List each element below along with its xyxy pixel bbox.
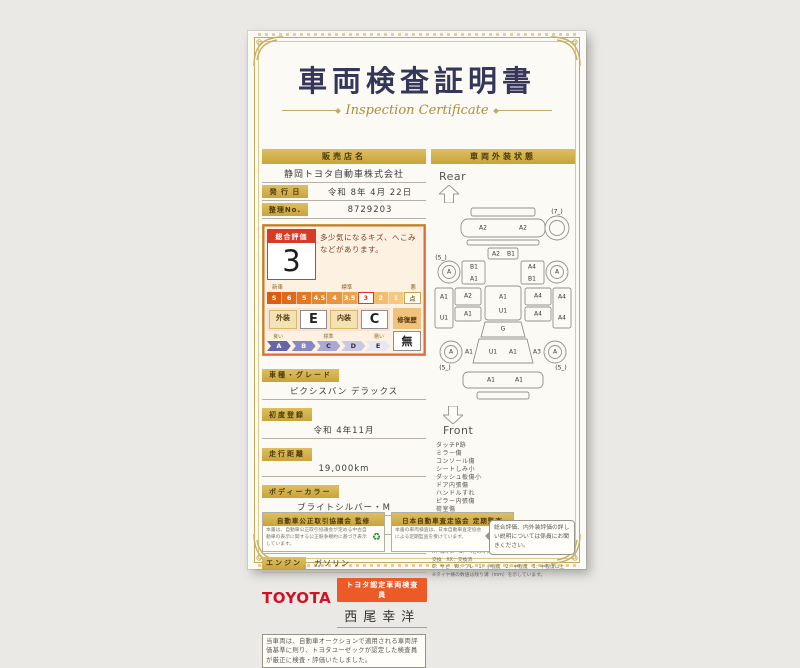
rear-direction: Rear [431,164,575,203]
exterior-condition-column: 車両外装状態 Rear [431,149,575,668]
damage-code: A1 [470,276,478,283]
front-direction: Front [431,402,575,437]
scale-cell: 5 [297,292,312,304]
scale-cell: 3 [358,292,374,304]
interior-grade: C [361,310,388,329]
rating-top-row: 総合評価 3 多少気になるキズ、へこみなどがあります。 [267,229,421,280]
grade-scale: ABCDE [267,341,390,351]
info-speech-bubble: 総合評価、内外装評価の詳しい説明については係員にお聞きください。 [489,520,575,555]
corner-flourish-icon [549,34,583,68]
condition-note: ピラー内張傷 [436,498,575,506]
grade-label-standard: 標準 [323,333,333,340]
damage-code: B1 [528,276,536,283]
damage-code: A1 [509,349,517,356]
damage-code: A1 [499,294,507,301]
rear-label: Rear [439,170,575,183]
vehicle-fields: 車種・グレード ピクシスバン デラックス 初度登録 令和 4年11月 走行距離 … [262,360,426,516]
damage-code: (7_) [551,209,563,216]
interior-label: 内装 [330,310,358,329]
rating-mid-row: 外装 E 内装 C 良い 標準 悪い ABCDE [267,308,421,351]
damage-code: A4 [558,315,566,322]
condition-note: コンソール傷 [436,458,575,466]
scale-cell: S [267,292,282,304]
damage-code: A2 [479,225,487,232]
field-label: 車種・グレード [262,369,339,382]
exterior-label: 外装 [269,310,297,329]
exterior-header: 車両外装状態 [431,149,575,164]
damage-code: A1 [440,294,448,301]
lace-edge-top [258,33,576,36]
scale-cell: 6 [282,292,297,304]
rating-scale: S654.543.5321 点 [267,292,421,304]
footer-boxes: 自動車公正取引協議会 監修 本書は、自動車公正取引協議会が定める中古自動車の表示… [262,512,514,552]
damage-code: (5_) [435,255,447,262]
rating-mid-left: 外装 E 内装 C 良い 標準 悪い ABCDE [267,308,390,351]
front-label: Front [443,424,575,437]
ref-no-value: 8729203 [314,205,426,215]
inspector-right: トヨタ認定車両検査員 西尾幸洋 [337,578,427,628]
photo-of-certificate: { "header": { "title": "車両検査証明書", "subti… [0,0,800,600]
grade-chevron: E [366,341,390,351]
damage-code: A2 [464,293,472,300]
damage-code: B1 [507,251,515,258]
condition-note: ドア内張傷 [436,482,575,490]
field-row: エンジン ガソリン [262,554,426,573]
repair-history: 修復歴 無 [393,308,421,351]
field-value: 19,000km [262,461,426,475]
overall-rating-value: 3 [268,243,315,279]
rating-box: 総合評価 3 多少気になるキズ、へこみなどがあります。 新車 標準 悪 S654… [262,224,426,356]
damage-code: A4 [534,293,542,300]
field-label: エンジン [262,557,306,570]
car-damage-diagram: A2A2(7_)A2B1(5_)AAB1A1A4B1A1U1A2A1A4A4A4… [431,206,575,402]
certificate-title: 車両検査証明書 [248,58,586,100]
fair-trade-title: 自動車公正取引協議会 監修 [263,513,384,526]
scale-axis-labels: 新車 標準 悪 [267,283,421,291]
damage-code: A [449,349,453,356]
condition-note: タッチP跡 [436,442,575,450]
condition-note: シートしみ小 [436,466,575,474]
damage-code: (5_) [439,365,451,372]
rating-scale-cells: S654.543.5321 [267,292,404,304]
damage-code: A1 [515,377,523,384]
damage-code: B1 [470,264,478,271]
inspector-name: 西尾幸洋 [337,606,427,628]
grade-chevron: A [267,341,291,351]
field-row: 走行距離 19,000km [262,439,426,477]
condition-notes: タッチP跡ミラー傷コンソール傷シートしみ小ダッシュ板傷小ドア内張傷ハンドルすれピ… [431,437,575,522]
field-label: 走行距離 [262,448,312,461]
condition-note: ミラー傷 [436,450,575,458]
grade-chevron: D [341,341,365,351]
field-label: ボディーカラー [262,485,339,498]
damage-code: A3 [533,349,541,356]
grade-label-bad: 悪い [374,333,384,340]
scale-label-bad: 悪 [410,283,416,291]
disclaimer-text: 当車両は、自動車オークションで適用される車両評価基準に則り、トヨタユーゼックが認… [262,634,426,668]
field-value: ガソリン [314,558,350,569]
scale-cell: 3.5 [343,292,358,304]
damage-code: A2 [492,251,500,258]
scale-label-new: 新車 [272,283,283,291]
damage-code: A1 [465,349,473,356]
inspector-badge: トヨタ認定車両検査員 [337,578,427,602]
field-value: ピクシスバン デラックス [262,382,426,398]
overall-rating: 総合評価 3 [267,229,316,280]
repair-history-value: 無 [393,331,421,351]
field-row: 車種・グレード ピクシスバン デラックス [262,360,426,400]
damage-code: A1 [487,377,495,384]
legend-line: ※タイヤ横の数値は残り溝（mm）を示しています。 [432,572,574,579]
field-row: 初度登録 令和 4年11月 [262,400,426,440]
legend-line: C：サビ W：ワレ 1：小程度 2：中程度 3：中程度以上 [432,564,574,571]
grade-axis-labels: 良い 標準 悪い [267,333,390,340]
condition-note: ハンドルすれ [436,490,575,498]
ref-no-label: 整理No. [262,203,308,216]
toyota-logo: TOYOTA [262,578,331,607]
subtitle-ornament-line [496,110,552,111]
corner-flourish-icon [251,34,285,68]
fair-trade-box: 自動車公正取引協議会 監修 本書は、自動車公正取引協議会が定める中古自動車の表示… [262,512,385,552]
content-columns: 販売店名 静岡トヨタ自動車株式会社 発 行 日 令和 8年 4月 22日 整理N… [262,149,573,668]
arrow-up-icon [439,185,575,203]
scale-cell: 2 [374,292,389,304]
scale-cell: 4 [327,292,342,304]
damage-code: A4 [534,311,542,318]
field-label: 初度登録 [262,408,312,421]
damage-code: U1 [440,315,448,322]
fair-trade-body: 本書は、自動車公正取引協議会が定める中古自動車の表示に関する公正競争規約に基づき… [266,528,369,549]
scale-cell: 1 [389,292,404,304]
fair-trade-body-row: 本書は、自動車公正取引協議会が定める中古自動車の表示に関する公正競争規約に基づき… [263,526,384,551]
subtitle-ornament-line [282,110,338,111]
grade-chevron: C [317,341,341,351]
scale-label-standard: 標準 [341,283,352,291]
seller-name: 静岡トヨタ自動車株式会社 [262,164,426,183]
vehicle-info-column: 販売店名 静岡トヨタ自動車株式会社 発 行 日 令和 8年 4月 22日 整理N… [262,149,426,668]
exterior-interior-row: 外装 E 内装 C [267,308,390,331]
issue-date-row: 発 行 日 令和 8年 4月 22日 [262,183,426,201]
damage-code: A4 [558,294,566,301]
damage-code: U1 [499,308,507,315]
damage-code: (5_) [555,365,567,372]
overall-rating-label: 総合評価 [268,230,315,243]
inspector-block: TOYOTA トヨタ認定車両検査員 西尾幸洋 [262,573,426,630]
certificate-subtitle: Inspection Certificate [345,103,488,118]
damage-code: U1 [489,349,497,356]
car-outline [431,206,575,402]
issue-date-label: 発 行 日 [262,185,308,198]
scale-cell: 4.5 [312,292,327,304]
repair-history-label: 修復歴 [393,308,421,329]
seller-header: 販売店名 [262,149,426,164]
certificate-sheet: 車両検査証明書 Inspection Certificate 販売店名 静岡トヨ… [248,31,586,569]
certificate-subtitle-row: Inspection Certificate [248,103,586,118]
issue-date-value: 令和 8年 4月 22日 [314,186,426,198]
ref-no-row: 整理No. 8729203 [262,201,426,219]
damage-code: A [555,269,559,276]
damage-code: A2 [519,225,527,232]
damage-code: A [447,269,451,276]
field-row: ボディーカラー ブライトシルバー・M [262,477,426,517]
damage-code: A4 [528,264,536,271]
appraisal-body: 本書の車両検査は、日本自動車査定協会による定期監査を受けています。 [395,528,486,542]
rating-comment: 多少気になるキズ、へこみなどがあります。 [320,229,421,280]
damage-code: A [553,349,557,356]
grade-chevron: B [292,341,316,351]
green-seal-icon: ♻ [372,531,381,546]
scale-unit: 点 [404,292,421,304]
field-value: 令和 4年11月 [262,421,426,437]
damage-code: A1 [464,311,472,318]
condition-note: ダッシュ板傷小 [436,474,575,482]
arrow-down-icon [443,406,575,424]
grade-label-good: 良い [273,333,283,340]
damage-code: G [501,326,506,333]
exterior-grade: E [300,310,327,329]
